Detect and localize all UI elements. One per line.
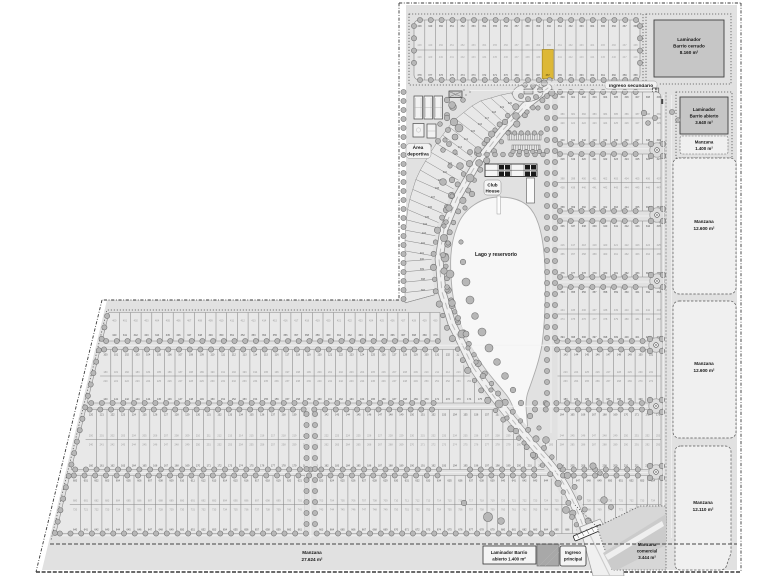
svg-text:301: 301	[571, 96, 576, 99]
svg-text:435: 435	[493, 56, 498, 59]
svg-text:403: 403	[614, 178, 619, 181]
svg-text:682: 682	[94, 500, 99, 503]
svg-text:447: 447	[657, 187, 662, 190]
svg-text:345: 345	[166, 334, 171, 337]
svg-text:266: 266	[367, 444, 372, 447]
svg-text:12.600 m²: 12.600 m²	[694, 368, 715, 373]
svg-text:367: 367	[546, 74, 551, 77]
svg-text:276: 276	[474, 444, 479, 447]
svg-text:607: 607	[148, 480, 153, 483]
svg-text:614: 614	[223, 480, 228, 483]
svg-text:637: 637	[469, 480, 474, 483]
svg-text:363: 363	[358, 334, 363, 337]
svg-text:154: 154	[253, 398, 258, 401]
svg-text:665: 665	[341, 528, 346, 531]
svg-text:245: 245	[371, 380, 376, 383]
svg-text:482: 482	[646, 318, 651, 321]
svg-text:672: 672	[415, 528, 420, 531]
svg-text:320: 320	[582, 158, 587, 161]
svg-text:162: 162	[110, 464, 115, 467]
svg-text:220: 220	[103, 380, 108, 383]
svg-text:175: 175	[478, 398, 483, 401]
svg-text:409: 409	[209, 320, 214, 323]
svg-text:365: 365	[558, 74, 563, 77]
svg-text:226: 226	[367, 435, 372, 438]
svg-text:406: 406	[646, 178, 651, 181]
svg-text:678: 678	[480, 528, 485, 531]
svg-text:241: 241	[328, 380, 333, 383]
svg-text:238: 238	[296, 380, 301, 383]
svg-text:722: 722	[522, 500, 527, 503]
svg-text:361: 361	[635, 291, 640, 294]
svg-text:691: 691	[191, 500, 196, 503]
svg-text:213: 213	[456, 371, 461, 374]
svg-text:136: 136	[260, 414, 265, 417]
svg-text:201: 201	[528, 464, 533, 467]
svg-text:212: 212	[446, 371, 451, 374]
svg-text:204: 204	[360, 371, 365, 374]
svg-text:438: 438	[560, 187, 565, 190]
svg-text:761: 761	[512, 509, 517, 512]
svg-text:200: 200	[517, 464, 522, 467]
svg-text:171: 171	[207, 464, 212, 467]
svg-text:429: 429	[428, 56, 433, 59]
svg-text:286: 286	[581, 444, 586, 447]
svg-text:677: 677	[469, 528, 474, 531]
svg-text:289: 289	[613, 444, 618, 447]
svg-text:438: 438	[525, 56, 530, 59]
svg-text:360: 360	[612, 74, 617, 77]
svg-text:149: 149	[200, 398, 205, 401]
svg-text:423: 423	[592, 122, 597, 125]
svg-text:205: 205	[142, 435, 147, 438]
svg-text:252: 252	[217, 444, 222, 447]
svg-text:247: 247	[392, 380, 397, 383]
svg-text:703: 703	[319, 500, 324, 503]
svg-text:643: 643	[105, 528, 110, 531]
svg-text:755: 755	[448, 509, 453, 512]
svg-text:146: 146	[596, 354, 601, 357]
svg-text:169: 169	[185, 464, 190, 467]
svg-text:735: 735	[234, 509, 239, 512]
svg-text:360: 360	[326, 334, 331, 337]
svg-text:726: 726	[137, 509, 142, 512]
svg-text:139: 139	[292, 414, 297, 417]
svg-text:150: 150	[210, 398, 215, 401]
svg-text:200: 200	[89, 435, 94, 438]
svg-text:257: 257	[271, 444, 276, 447]
svg-text:154: 154	[453, 414, 458, 417]
svg-text:369: 369	[515, 74, 520, 77]
svg-text:126: 126	[382, 354, 387, 357]
svg-text:636: 636	[458, 480, 463, 483]
svg-text:371: 371	[493, 74, 498, 77]
svg-text:215: 215	[249, 435, 254, 438]
svg-text:447: 447	[623, 56, 628, 59]
svg-text:363: 363	[579, 25, 584, 28]
svg-text:474: 474	[560, 318, 565, 321]
svg-text:210: 210	[196, 435, 201, 438]
svg-text:728: 728	[587, 500, 592, 503]
svg-text:671: 671	[405, 528, 410, 531]
svg-text:632: 632	[415, 480, 420, 483]
svg-text:386: 386	[625, 113, 630, 116]
svg-text:344: 344	[155, 334, 160, 337]
svg-text:346: 346	[176, 334, 181, 337]
svg-text:203: 203	[121, 435, 126, 438]
svg-text:759: 759	[490, 509, 495, 512]
svg-text:223: 223	[563, 371, 568, 374]
svg-text:448: 448	[417, 44, 422, 47]
svg-text:285: 285	[570, 444, 575, 447]
svg-text:419: 419	[592, 244, 597, 247]
svg-text:Barrio abierto: Barrio abierto	[690, 114, 719, 119]
svg-text:153: 153	[442, 414, 447, 417]
svg-text:172: 172	[446, 398, 451, 401]
svg-text:143: 143	[135, 398, 140, 401]
svg-text:355: 355	[493, 25, 498, 28]
svg-text:439: 439	[536, 56, 541, 59]
svg-text:211: 211	[435, 371, 440, 374]
svg-text:264: 264	[346, 444, 351, 447]
svg-text:321: 321	[592, 158, 597, 161]
svg-text:358: 358	[305, 334, 310, 337]
svg-text:230: 230	[410, 435, 415, 438]
svg-text:146: 146	[367, 414, 372, 417]
svg-text:254: 254	[239, 444, 244, 447]
svg-text:601: 601	[84, 480, 89, 483]
svg-text:235: 235	[264, 380, 269, 383]
svg-text:403: 403	[422, 232, 427, 235]
svg-text:190: 190	[410, 464, 415, 467]
svg-text:249: 249	[613, 435, 618, 438]
svg-text:643: 643	[533, 480, 538, 483]
svg-text:125: 125	[142, 414, 147, 417]
svg-text:730: 730	[180, 509, 185, 512]
svg-text:341: 341	[123, 334, 128, 337]
svg-text:655: 655	[234, 528, 239, 531]
svg-text:229: 229	[628, 371, 633, 374]
svg-text:155: 155	[463, 414, 468, 417]
svg-text:253: 253	[456, 380, 461, 383]
svg-text:Club: Club	[487, 183, 497, 188]
svg-text:402: 402	[421, 242, 426, 245]
svg-text:370: 370	[433, 334, 438, 337]
svg-text:442: 442	[569, 56, 574, 59]
svg-text:229: 229	[200, 380, 205, 383]
svg-text:712: 712	[415, 500, 420, 503]
svg-text:723: 723	[105, 509, 110, 512]
svg-text:291: 291	[635, 444, 640, 447]
svg-text:432: 432	[461, 56, 466, 59]
svg-text:Laminador: Laminador	[677, 37, 701, 42]
svg-text:122: 122	[110, 414, 115, 417]
svg-text:251: 251	[207, 444, 212, 447]
svg-text:457: 457	[515, 44, 520, 47]
svg-text:359: 359	[536, 25, 541, 28]
svg-text:128: 128	[403, 354, 408, 357]
svg-text:722: 722	[94, 509, 99, 512]
svg-text:263: 263	[563, 380, 568, 383]
svg-text:186: 186	[168, 371, 173, 374]
svg-text:477: 477	[592, 318, 597, 321]
svg-text:222: 222	[324, 435, 329, 438]
svg-text:224: 224	[574, 371, 579, 374]
svg-text:207: 207	[392, 371, 397, 374]
svg-text:384: 384	[603, 113, 608, 116]
svg-text:649: 649	[597, 480, 602, 483]
svg-text:663: 663	[319, 528, 324, 531]
svg-text:207: 207	[164, 435, 169, 438]
svg-text:202: 202	[110, 435, 115, 438]
svg-text:deportiva: deportiva	[407, 152, 429, 158]
svg-text:641: 641	[84, 528, 89, 531]
svg-text:725: 725	[127, 509, 132, 512]
svg-text:267: 267	[606, 380, 611, 383]
svg-text:407: 407	[187, 320, 192, 323]
svg-text:729: 729	[169, 509, 174, 512]
svg-text:414: 414	[464, 138, 469, 141]
svg-text:256: 256	[260, 444, 265, 447]
svg-text:401: 401	[635, 336, 640, 339]
svg-text:611: 611	[191, 480, 196, 483]
svg-text:732: 732	[201, 509, 206, 512]
svg-text:373: 373	[471, 74, 476, 77]
svg-text:173: 173	[456, 398, 461, 401]
svg-text:355: 355	[273, 334, 278, 337]
svg-text:Manzana: Manzana	[693, 500, 713, 505]
svg-text:644: 644	[544, 480, 549, 483]
svg-text:267: 267	[378, 444, 383, 447]
svg-text:265: 265	[585, 380, 590, 383]
svg-text:225: 225	[585, 371, 590, 374]
svg-text:166: 166	[382, 398, 387, 401]
svg-text:269: 269	[399, 444, 404, 447]
svg-text:352: 352	[461, 25, 466, 28]
svg-text:comercial: comercial	[637, 549, 658, 554]
svg-text:345: 345	[657, 225, 662, 228]
svg-text:293: 293	[656, 444, 661, 447]
svg-text:259: 259	[292, 444, 297, 447]
svg-text:666: 666	[351, 528, 356, 531]
svg-text:421: 421	[614, 244, 619, 247]
svg-text:230: 230	[638, 371, 643, 374]
svg-text:254: 254	[467, 380, 472, 383]
svg-text:408: 408	[198, 320, 203, 323]
svg-text:733: 733	[640, 500, 645, 503]
svg-text:358: 358	[603, 291, 608, 294]
svg-text:417: 417	[294, 320, 299, 323]
svg-text:209: 209	[414, 371, 419, 374]
svg-text:771: 771	[619, 509, 624, 512]
svg-text:410: 410	[443, 171, 448, 174]
svg-text:173: 173	[228, 464, 233, 467]
svg-text:234: 234	[453, 435, 458, 438]
svg-text:228: 228	[189, 380, 194, 383]
svg-text:163: 163	[349, 398, 354, 401]
svg-text:412: 412	[241, 320, 246, 323]
svg-text:305: 305	[614, 96, 619, 99]
svg-text:271: 271	[421, 444, 426, 447]
svg-text:605: 605	[127, 480, 132, 483]
svg-text:462: 462	[569, 44, 574, 47]
svg-text:165: 165	[570, 414, 575, 417]
svg-text:255: 255	[249, 444, 254, 447]
svg-text:659: 659	[276, 528, 281, 531]
svg-text:121: 121	[328, 354, 333, 357]
svg-text:253: 253	[228, 444, 233, 447]
svg-text:653: 653	[212, 528, 217, 531]
svg-text:661: 661	[298, 528, 303, 531]
svg-text:241: 241	[100, 444, 105, 447]
svg-text:163: 163	[121, 464, 126, 467]
svg-text:120: 120	[89, 414, 94, 417]
svg-text:131: 131	[435, 354, 440, 357]
svg-text:431: 431	[450, 56, 455, 59]
svg-text:250: 250	[196, 444, 201, 447]
svg-text:357: 357	[515, 25, 520, 28]
svg-text:451: 451	[450, 44, 455, 47]
svg-text:626: 626	[351, 480, 356, 483]
svg-text:180: 180	[103, 371, 108, 374]
svg-text:251: 251	[635, 435, 640, 438]
svg-text:423: 423	[358, 320, 363, 323]
svg-text:658: 658	[266, 528, 271, 531]
svg-text:340: 340	[603, 225, 608, 228]
svg-text:119: 119	[307, 354, 312, 357]
svg-text:695: 695	[234, 500, 239, 503]
svg-text:101: 101	[114, 354, 119, 357]
svg-text:262: 262	[324, 444, 329, 447]
svg-text:196: 196	[474, 464, 479, 467]
svg-text:683: 683	[533, 528, 538, 531]
svg-text:160: 160	[317, 398, 322, 401]
svg-text:12.110 m²: 12.110 m²	[693, 507, 714, 512]
svg-text:452: 452	[461, 44, 466, 47]
svg-text:426: 426	[390, 320, 395, 323]
svg-text:363: 363	[657, 291, 662, 294]
svg-text:355: 355	[571, 291, 576, 294]
svg-text:424: 424	[369, 320, 374, 323]
svg-text:406: 406	[176, 320, 181, 323]
svg-text:478: 478	[603, 318, 608, 321]
svg-text:719: 719	[490, 500, 495, 503]
svg-text:422: 422	[625, 244, 630, 247]
svg-text:169: 169	[613, 414, 618, 417]
svg-text:147: 147	[378, 414, 383, 417]
svg-text:abierto 1.400 m²: abierto 1.400 m²	[492, 557, 526, 562]
svg-text:420: 420	[508, 102, 513, 105]
svg-text:123: 123	[121, 414, 126, 417]
svg-text:760: 760	[501, 509, 506, 512]
svg-text:198: 198	[496, 464, 501, 467]
svg-text:743: 743	[319, 509, 324, 512]
svg-text:127: 127	[392, 354, 397, 357]
svg-text:177: 177	[271, 464, 276, 467]
svg-text:694: 694	[223, 500, 228, 503]
svg-text:359: 359	[623, 74, 628, 77]
svg-text:360: 360	[547, 25, 552, 28]
svg-text:104: 104	[146, 354, 151, 357]
svg-text:443: 443	[614, 187, 619, 190]
svg-text:224: 224	[146, 380, 151, 383]
svg-text:426: 426	[625, 122, 630, 125]
svg-text:615: 615	[234, 480, 239, 483]
svg-text:465: 465	[657, 253, 662, 256]
svg-text:187: 187	[178, 371, 183, 374]
svg-text:147: 147	[606, 354, 611, 357]
svg-text:147: 147	[178, 398, 183, 401]
svg-text:647: 647	[148, 528, 153, 531]
svg-text:689: 689	[169, 500, 174, 503]
svg-text:428: 428	[412, 320, 417, 323]
svg-text:455: 455	[493, 44, 498, 47]
svg-text:463: 463	[579, 44, 584, 47]
svg-text:441: 441	[592, 187, 597, 190]
svg-text:353: 353	[251, 334, 256, 337]
svg-text:610: 610	[180, 480, 185, 483]
svg-text:Manzana: Manzana	[638, 542, 657, 547]
svg-text:325: 325	[635, 158, 640, 161]
svg-text:648: 648	[587, 480, 592, 483]
svg-text:192: 192	[232, 371, 237, 374]
svg-text:206: 206	[153, 435, 158, 438]
svg-text:425: 425	[614, 122, 619, 125]
svg-text:356: 356	[582, 291, 587, 294]
svg-text:117: 117	[285, 354, 290, 357]
svg-text:438: 438	[603, 309, 608, 312]
svg-text:149: 149	[399, 414, 404, 417]
svg-text:principal: principal	[564, 557, 582, 562]
svg-text:106: 106	[168, 354, 173, 357]
svg-text:143: 143	[335, 414, 340, 417]
svg-text:158: 158	[296, 398, 301, 401]
svg-text:456: 456	[560, 253, 565, 256]
svg-text:734: 734	[651, 500, 656, 503]
svg-text:236: 236	[275, 380, 280, 383]
svg-text:430: 430	[433, 320, 438, 323]
svg-text:479: 479	[614, 318, 619, 321]
svg-text:381: 381	[571, 113, 576, 116]
svg-text:174: 174	[239, 464, 244, 467]
svg-text:248: 248	[403, 380, 408, 383]
svg-text:421: 421	[571, 122, 576, 125]
svg-text:248: 248	[603, 435, 608, 438]
svg-text:650: 650	[608, 480, 613, 483]
svg-text:389: 389	[657, 113, 662, 116]
svg-text:152: 152	[232, 398, 237, 401]
svg-text:231: 231	[421, 435, 426, 438]
svg-text:736: 736	[244, 509, 249, 512]
svg-text:403: 403	[144, 320, 149, 323]
svg-text:127: 127	[164, 414, 169, 417]
svg-text:197: 197	[285, 371, 290, 374]
svg-text:731: 731	[619, 500, 624, 503]
svg-text:374: 374	[461, 74, 466, 77]
svg-text:762: 762	[522, 509, 527, 512]
svg-text:395: 395	[571, 336, 576, 339]
svg-text:439: 439	[614, 309, 619, 312]
svg-text:348: 348	[417, 25, 422, 28]
svg-text:179: 179	[292, 464, 297, 467]
svg-text:209: 209	[185, 435, 190, 438]
svg-text:364: 364	[369, 334, 374, 337]
svg-text:250: 250	[424, 380, 429, 383]
svg-text:397: 397	[421, 289, 426, 292]
svg-text:718: 718	[480, 500, 485, 503]
svg-text:425: 425	[380, 320, 385, 323]
svg-text:476: 476	[582, 318, 587, 321]
